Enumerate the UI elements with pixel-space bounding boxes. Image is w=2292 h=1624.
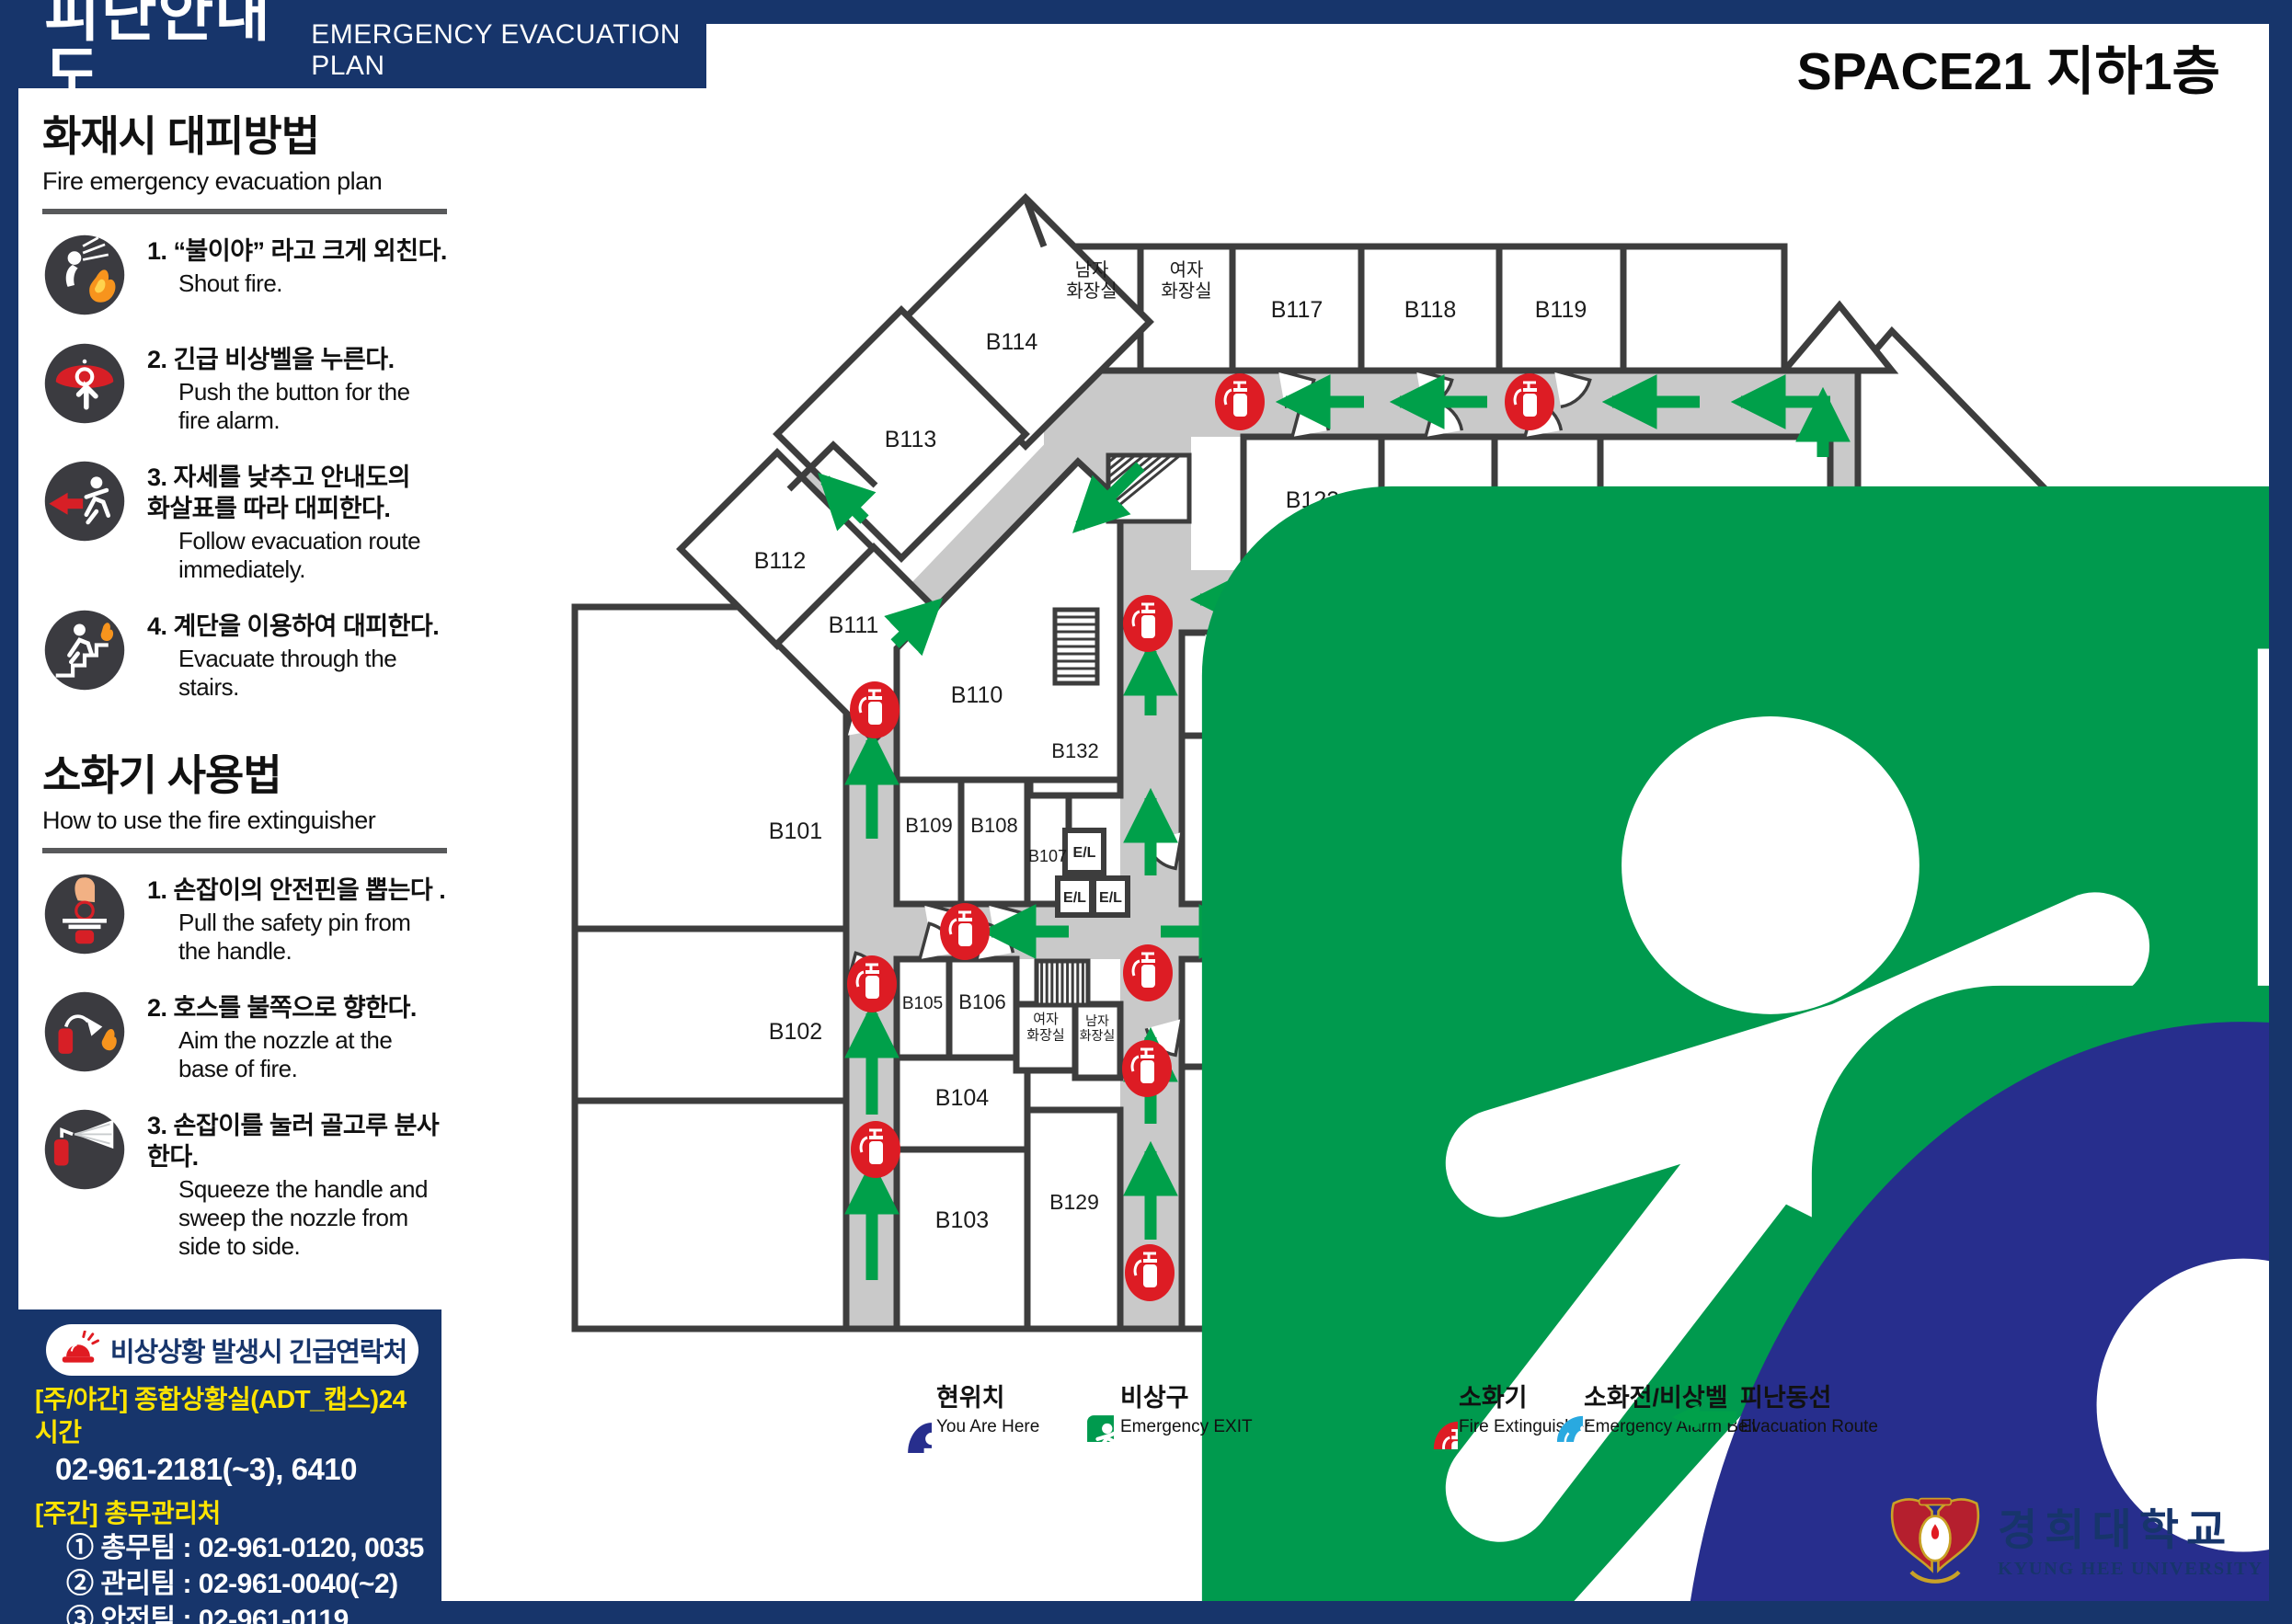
elevator [1058,878,1092,915]
room-B103 [897,1149,1027,1329]
fire-extinguisher-icon [1404,571,1453,628]
door-arc [1205,633,1241,669]
sweep-spray-icon [42,1107,127,1192]
room-B113 [777,310,1026,558]
room-label-B117: B117 [1271,297,1324,323]
page-title: 피난안내도 [44,0,292,105]
stair-tread [1108,455,1135,477]
fire-extinguisher-icon [1690,784,1739,841]
room [1755,956,1858,1094]
legend-label-korean: 비상구 [1120,1385,1253,1412]
room-B155 [1600,956,1697,1025]
stairs [1055,610,1097,683]
room-B110 [897,462,1120,780]
room [1755,771,2037,915]
door-arc [1426,401,1461,437]
legend-label-english: Emergency EXIT [1120,1417,1253,1437]
room-남자화장실 [1075,1004,1120,1078]
room-label-B151: B151 [1624,1220,1671,1243]
door-arc [1146,832,1182,868]
elevator-label: E/L [1771,889,1793,905]
door-arc [1656,570,1691,606]
page-border-right [2269,0,2292,1624]
door-arc [1661,1218,1697,1254]
door-arc [1292,401,1328,437]
room-label-B101: B101 [769,818,822,844]
door-arc [1352,633,1388,669]
follow-route-icon [42,459,127,543]
stairs [1037,961,1088,1005]
room-label-B106: B106 [958,990,1005,1013]
elevator [1764,879,1799,912]
extinguisher-section-title: 소화기 사용법 [42,742,447,803]
room-B159 [1798,817,1851,910]
contact-line: ① 총무팀 : 02-961-0120, 0035 [35,1530,429,1566]
room-label-여자화장실: 여자화장실 [1026,1012,1064,1043]
legend-label-korean: 현위치 [936,1385,1039,1412]
room-label-B159: B159 [1806,855,1845,874]
room-B101 [575,607,846,929]
room-label-B156: B156 [1624,868,1671,891]
instruction-item: 1. 손잡이의 안전핀을 뽑는다 .Pull the safety pin fr… [42,872,447,966]
door-arc [1661,885,1697,921]
room-label-B110: B110 [951,682,1003,708]
room-B157 [1600,771,1697,846]
room-B111 [777,547,970,740]
fire-extinguisher-icon [1123,595,1173,652]
legend-label-korean: 피난동선 [1740,1385,1878,1412]
room-B153 [1600,1092,1697,1161]
door-arc [989,904,1025,940]
room-B108 [961,780,1027,904]
fire-extinguisher-icon [850,681,900,738]
elevator-label: E/L [1734,889,1757,905]
wall [1755,956,1856,1090]
room-label-B102: B102 [769,1019,822,1045]
stair-tread [1108,455,1171,507]
instruction-english: Follow evacuation route immediately. [178,527,447,584]
stair-tread [1108,455,1127,470]
evacuation-route-arrow [825,480,865,520]
room-B154 [1600,1025,1697,1092]
header: 피난안내도 EMERGENCY EVACUATION PLAN [0,0,706,88]
fire-extinguisher-icon [940,903,990,960]
room-B112 [681,452,874,646]
door-arc [1661,818,1697,854]
corridor [1600,915,2037,956]
extinguisher-section: 소화기 사용법 How to use the fire extinguisher… [42,742,447,1261]
room-B156 [1600,846,1697,915]
elevator-label: E/L [1073,845,1096,861]
contact-line: ② 관리팀 : 02-961-0040(~2) [35,1566,429,1602]
contacts-header: 비상상황 발생시 긴급연락처 [110,1331,407,1369]
door-arc [920,923,956,959]
room-label-B133: B133 [1962,548,2015,574]
room-B127 [1182,959,1435,1067]
fire-extinguisher-icon [1690,939,1739,996]
room-label-B126: B126 [1233,806,1287,831]
fire-extinguisher-icon [847,955,897,1012]
door-arc [1146,1019,1182,1055]
elevator [1727,879,1762,912]
door-arc [846,953,882,989]
wall [1026,198,1044,246]
instruction-item: 1. “불이야” 라고 크게 외친다.Shout fire. [42,233,447,317]
room-label-B121: B121 [1411,487,1464,513]
fire-extinguisher-icon [1122,1040,1172,1097]
room-B102 [575,929,846,1101]
siren-icon [57,1331,99,1369]
elevator-label: E/L [1099,890,1122,906]
room-B133 [1858,331,2203,685]
instruction-korean: 2. 긴급 비상벨을 누른다. [147,345,447,376]
stairs-icon [42,608,127,692]
legend-label: 피난동선Evacuation Route [1740,1385,1878,1437]
room-label-B158: B158 [1762,688,1816,714]
room-여자화장실 [1140,246,1232,371]
room-B129 [1027,1110,1120,1329]
sidebar-instructions: 화재시 대피방법 Fire emergency evacuation plan … [42,103,447,1285]
fire-extinguisher-icon [1215,373,1265,430]
instruction-item: 3. 손잡이를 눌러 골고루 분사한다.Squeeze the handle a… [42,1107,447,1261]
room [575,1101,846,1329]
wall [789,445,876,489]
room-B124 [1329,633,1476,736]
room-label-B111: B111 [829,612,879,638]
corridor [897,904,1435,959]
room-B122 [1243,437,1381,570]
instruction-korean: 3. 손잡이를 눌러 골고루 분사한다. [147,1111,447,1173]
room-label-B104: B104 [935,1085,989,1111]
elevator [1094,878,1128,915]
corridor [789,445,876,532]
room-남자화장실 [1805,1017,1856,1092]
door-arc [846,700,882,736]
alarm-bell-icon [1648,552,2292,1624]
fire-section-title: 화재시 대피방법 [42,103,447,164]
corridor [1120,570,1858,633]
page-title-english: EMERGENCY EVACUATION PLAN [311,6,706,82]
room-B158 [1476,633,2037,771]
room-label-B129: B129 [1049,1190,1099,1214]
bell-legend-icon [1526,1385,1583,1447]
room-label-남자화장실: 남자화장실 [1066,259,1117,302]
exit-legend-icon [1057,1385,1114,1447]
room-label-B162: B162 [2093,772,2147,798]
room-B119 [1499,246,1623,371]
contact-line: [주간] 총무관리처 [35,1497,429,1530]
alarm-button-icon [42,341,127,426]
room-B118 [1361,246,1499,371]
room-B128 [1182,1067,1435,1329]
floor-title: SPACE21 지하1층 [1797,29,2220,105]
stair-tread [1108,455,1153,492]
room-label-B155: B155 [1624,978,1671,1001]
door-arc [1554,371,1590,406]
room-label-B153: B153 [1624,1114,1671,1137]
room-label-B103: B103 [935,1207,989,1233]
room-B125 [1182,633,1329,736]
emergency-exit-icon [1202,486,2292,1624]
you-are-here-legend-icon [875,1385,932,1458]
aim-nozzle-icon [42,989,127,1074]
room-label-B128: B128 [1215,1168,1268,1194]
corridor [846,432,1142,651]
room-남자화장실 [1044,246,1140,371]
instruction-english: Aim the nozzle at the base of fire. [178,1026,447,1083]
room-label-B119: B119 [1535,297,1587,323]
corridor [846,644,897,1329]
evacuation-route-arrow [895,605,935,644]
elevator [1764,837,1803,874]
room-B105 [897,959,949,1058]
room-B162 [2037,685,2203,883]
instruction-english: Pull the safety pin from the handle. [178,909,447,966]
room-label-B124: B124 [1376,671,1429,697]
fire-extinguisher-icon [1505,373,1554,430]
fire-section-subtitle: Fire emergency evacuation plan [42,167,447,196]
fire-extinguisher-icon [1125,1244,1175,1301]
room-label-B123: B123 [1675,487,1728,513]
door-arc [924,904,960,940]
instruction-english: Evacuate through the stairs. [178,645,447,702]
logo-english-name: KYUNG HEE UNIVERSITY [1998,1559,2263,1580]
extinguisher-section-subtitle: How to use the fire extinguisher [42,806,447,835]
elevator [1065,830,1104,873]
room-label-B125: B125 [1229,671,1282,697]
divider [42,209,447,214]
contact-line: ③ 안전팀 : 02-961-0119 [35,1602,429,1624]
door-arc [1525,401,1561,437]
room-label-B108: B108 [970,814,1017,837]
instruction-korean: 2. 호스를 불쪽으로 향한다. [147,993,447,1024]
contact-line: 02-961-2181(~3), 6410 [35,1450,429,1490]
corridor [1697,956,1755,1305]
extinguisher-legend-icon [1401,1385,1458,1454]
contact-line: [주/야간] 종합상황실(ADT_캡스)24시간 [35,1383,429,1450]
room-label-B154: B154 [1624,1046,1671,1069]
fire-extinguisher-icon [1123,944,1173,1001]
room-B104 [897,1058,1027,1149]
legend-label: 비상구Emergency EXIT [1120,1385,1253,1437]
stair-tread [1108,455,1117,463]
shout-fire-icon [42,233,127,317]
instruction-item: 2. 긴급 비상벨을 누른다.Push the button for the f… [42,341,447,435]
room-label-B105: B105 [902,994,943,1013]
room [1623,246,1784,371]
alarm-bell-icon [2038,478,2292,1624]
legend-label-english: You Are Here [936,1417,1039,1437]
corridor [1044,437,1191,633]
wall [1755,883,2203,1305]
corridor [1697,786,1755,915]
room-label-여자화장실: 여자화장실 [1161,259,1211,302]
stairs [1762,962,1816,1006]
instruction-korean: 1. “불이야” 라고 크게 외친다. [147,236,447,268]
room-label-B112: B112 [754,548,807,574]
room-label-B118: B118 [1404,297,1457,323]
room-label-B109: B109 [905,814,952,837]
wall [2037,582,2138,685]
university-logo: 경희대학교 KYUNG HEE UNIVERSITY [1887,1481,2264,1607]
door-arc [1416,371,1452,406]
stair-tread [1108,455,1163,499]
instruction-item: 2. 호스를 불쪽으로 향한다.Aim the nozzle at the ba… [42,989,447,1083]
room-label-B132: B132 [1051,739,1098,762]
room-B107 [1027,791,1069,904]
room-label-B113: B113 [885,427,937,452]
instruction-item: 4. 계단을 이용하여 대피한다.Evacuate through the st… [42,608,447,702]
stair-tread [1108,455,1144,485]
room-B106 [949,959,1016,1058]
door-arc [2017,685,2053,721]
fire-extinguisher-icon [851,1121,900,1178]
room-label-남자화장실: 남자화장실 [1814,1030,1847,1058]
room-label-B120: B120 [1520,487,1574,513]
instruction-english: Push the button for the fire alarm. [178,378,447,435]
emergency-contacts-panel: 비상상황 발생시 긴급연락처 [주/야간] 종합상황실(ADT_캡스)24시간0… [18,1309,441,1601]
room-label-B122: B122 [1286,487,1339,513]
corridor [1789,371,1858,633]
elevator-label: E/L [1772,849,1795,864]
elevator-label: E/L [1063,890,1086,906]
door-arc [1661,1065,1697,1101]
room-B126 [1182,736,1435,904]
door-arc [1661,1131,1697,1167]
divider [42,848,447,853]
instruction-english: Shout fire. [178,269,447,298]
fire-evacuation-section: 화재시 대피방법 Fire emergency evacuation plan … [42,103,447,702]
pull-pin-icon [42,872,127,956]
contacts-header-pill: 비상상황 발생시 긴급연락처 [46,1324,418,1376]
evacuation-route-arrow [1080,466,1140,526]
room-label-B107: B107 [1028,847,1067,865]
room-여자화장실 [1758,1008,1805,1091]
khu-crest-icon [1887,1488,1983,1600]
room-B114 [901,198,1150,446]
room-label-B157: B157 [1624,796,1671,819]
room-label-B127: B127 [1215,999,1268,1024]
room-label-여자화장실: 여자화장실 [1765,1019,1798,1046]
route-arrow-legend-icon [1672,1403,1736,1435]
fire-extinguisher-icon [1794,567,1844,624]
corridor [1044,371,1858,437]
page-border-left [0,0,18,1624]
fire-extinguisher-icon [1691,1247,1741,1304]
corridor [1120,959,1182,1329]
room-B120 [1495,437,1600,570]
room-B151 [1600,1161,1697,1305]
door-arc [1545,633,1581,669]
instruction-item: 3. 자세를 낮추고 안내도의 화살표를 따라 대피한다.Follow evac… [42,459,447,584]
door-arc [1661,995,1697,1031]
stair-tread [1108,455,1180,514]
door-arc [977,923,1013,959]
room-B109 [897,780,961,904]
logo-korean-name: 경희대학교 [1998,1508,2263,1551]
room-B121 [1381,437,1495,570]
legend-label: 현위치You Are Here [936,1385,1039,1437]
stairs [1108,455,1189,521]
instruction-korean: 3. 자세를 낮추고 안내도의 화살표를 따라 대피한다. [147,463,447,525]
instruction-korean: 4. 계단을 이용하여 대피한다. [147,612,447,643]
door-arc [1278,371,1314,406]
room [1784,305,1892,371]
instruction-english: Squeeze the handle and sweep the nozzle … [178,1175,447,1262]
room-B117 [1232,246,1361,371]
corridor [1120,633,1182,904]
legend-label-english: Evacuation Route [1740,1417,1878,1437]
evacuation-plan-poster: E/LE/LE/LE/LE/LE/L남자화장실여자화장실B117B118B119… [0,0,2292,1624]
room-여자화장실 [1016,1004,1075,1070]
instruction-korean: 1. 손잡이의 안전핀을 뽑는다 . [147,875,447,907]
room-label-B114: B114 [986,329,1038,355]
room-B123 [1600,437,1830,570]
room-B132 [1030,706,1120,795]
room-label-남자화장실: 남자화장실 [1080,1013,1116,1043]
